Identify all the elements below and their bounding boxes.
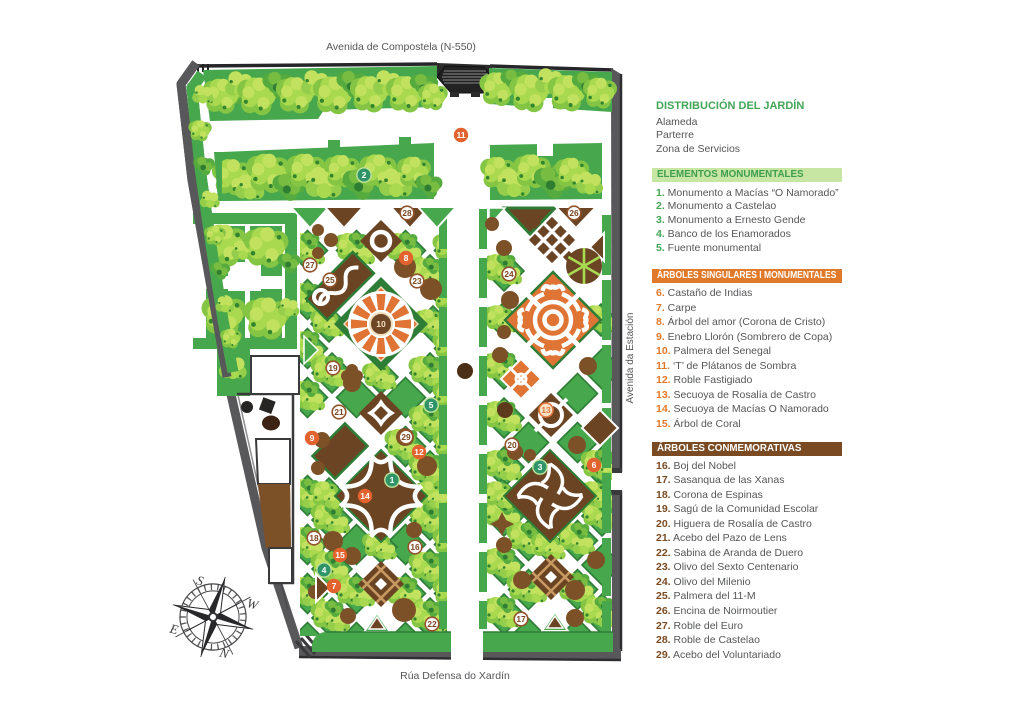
svg-text:9: 9: [310, 433, 315, 443]
svg-text:21: 21: [334, 407, 344, 417]
svg-text:N: N: [217, 644, 232, 661]
svg-text:22: 22: [427, 619, 437, 629]
svg-text:8: 8: [404, 253, 409, 263]
svg-text:15: 15: [335, 550, 345, 560]
svg-text:3: 3: [538, 462, 543, 472]
svg-text:19: 19: [328, 363, 338, 373]
svg-text:6: 6: [592, 460, 597, 470]
svg-text:24: 24: [504, 269, 514, 279]
svg-text:16: 16: [410, 542, 420, 552]
svg-text:Avenida de Compostela (N-550): Avenida de Compostela (N-550): [326, 41, 476, 53]
svg-text:26: 26: [569, 208, 579, 218]
svg-text:20: 20: [507, 440, 517, 450]
svg-text:Avenida da Estación: Avenida da Estación: [625, 313, 636, 404]
svg-text:28: 28: [402, 208, 412, 218]
svg-text:10: 10: [376, 319, 386, 329]
svg-text:12: 12: [414, 447, 424, 457]
svg-text:11: 11: [456, 130, 465, 140]
svg-text:27: 27: [305, 260, 315, 270]
svg-text:18: 18: [309, 533, 319, 543]
svg-text:13: 13: [541, 405, 551, 415]
svg-text:25: 25: [325, 275, 335, 285]
svg-text:23: 23: [412, 276, 422, 286]
svg-text:2: 2: [362, 170, 367, 180]
svg-text:14: 14: [360, 491, 370, 501]
svg-text:4: 4: [322, 565, 327, 575]
svg-text:1: 1: [390, 475, 395, 485]
svg-text:E: E: [167, 620, 180, 637]
svg-text:29: 29: [401, 432, 411, 442]
svg-text:7: 7: [332, 581, 337, 591]
svg-text:W: W: [245, 595, 260, 613]
svg-text:17: 17: [516, 614, 526, 624]
svg-text:5: 5: [429, 400, 434, 410]
svg-text:Rúa Defensa do Xardín: Rúa Defensa do Xardín: [400, 670, 510, 682]
